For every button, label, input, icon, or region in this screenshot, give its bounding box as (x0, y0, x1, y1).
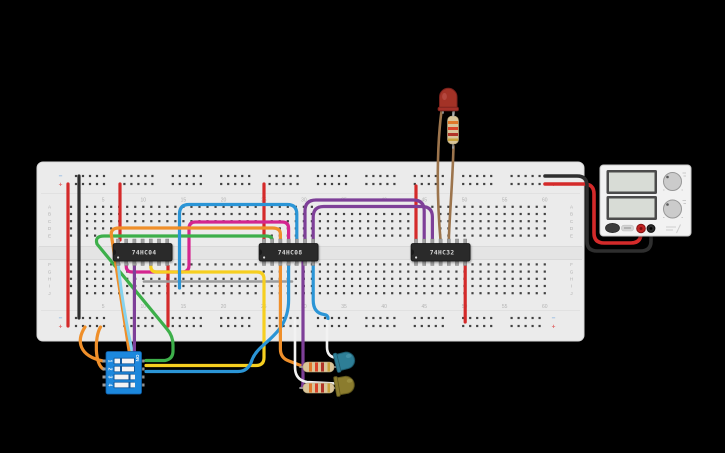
dip-position-label: 1 (106, 360, 112, 363)
circuit-canvas[interactable]: 5510101515202025253030353540404545505055… (0, 0, 725, 453)
ic-pin1-dot (415, 256, 417, 258)
svg-text:F: F (48, 262, 51, 267)
psu-knob[interactable] (664, 173, 682, 191)
svg-text:J: J (570, 291, 572, 296)
svg-text:−: − (59, 173, 63, 180)
resistor-band (321, 384, 324, 393)
svg-text:40: 40 (381, 304, 387, 310)
resistor-led1[interactable] (448, 112, 459, 148)
ic-label: 74HC32 (430, 249, 455, 256)
psu-knob-indicator (666, 203, 669, 206)
svg-text:G: G (570, 269, 574, 274)
svg-text:E: E (570, 233, 573, 238)
svg-text:B: B (570, 212, 573, 217)
dip-switch[interactable]: 1234ON (103, 352, 145, 395)
svg-text:+: + (552, 323, 556, 330)
svg-text:J: J (48, 291, 50, 296)
svg-text:−: − (59, 315, 63, 322)
svg-text:+: + (59, 181, 63, 188)
svg-text:F: F (570, 262, 573, 267)
resistor-band (448, 139, 458, 142)
svg-text:5: 5 (102, 197, 105, 203)
resistor-band (328, 363, 331, 372)
circuit-scene: 5510101515202025253030353540404545505055… (0, 0, 725, 453)
svg-text:10: 10 (140, 197, 146, 203)
svg-text:15: 15 (181, 197, 187, 203)
psu-knob-indicator (666, 176, 669, 179)
svg-text:55: 55 (502, 197, 508, 203)
svg-text:−: − (552, 315, 556, 322)
svg-text:55: 55 (502, 304, 508, 310)
dip-slider-nub[interactable] (131, 383, 136, 388)
resistor-band (328, 384, 331, 393)
svg-text:+: + (59, 323, 63, 330)
svg-text:H: H (48, 277, 51, 282)
svg-text:20: 20 (221, 197, 227, 203)
resistor-band (321, 363, 324, 372)
resistor-band (309, 363, 312, 372)
ic-label: 74HC08 (278, 249, 303, 256)
resistor-led2[interactable] (300, 362, 339, 372)
psu-knob[interactable] (664, 200, 682, 218)
resistor-led3[interactable] (300, 383, 339, 393)
resistor-band (448, 133, 458, 136)
resistor-band (315, 363, 318, 372)
svg-text:B: B (48, 212, 51, 217)
svg-text:35: 35 (341, 304, 347, 310)
dip-slider[interactable] (122, 367, 134, 372)
resistor-band (315, 384, 318, 393)
led-highlight (442, 93, 447, 100)
svg-text:45: 45 (422, 304, 428, 310)
svg-text:50: 50 (462, 197, 468, 203)
dip-position-label: 3 (106, 376, 112, 379)
svg-text:5: 5 (102, 304, 105, 310)
dip-position-label: 2 (106, 368, 112, 371)
ic-label: 74HC04 (132, 249, 157, 256)
svg-text:E: E (48, 233, 51, 238)
resistor-band (448, 121, 458, 124)
ic-pin1-dot (117, 256, 119, 258)
resistor-band (309, 384, 312, 393)
dip-slider-nub[interactable] (131, 375, 136, 380)
psu-power-button[interactable] (606, 223, 620, 232)
dip-slider[interactable] (122, 359, 134, 364)
svg-text:I: I (49, 284, 50, 289)
resistor-band (448, 127, 458, 130)
power-supply[interactable] (600, 165, 691, 236)
dip-slider-nub[interactable] (115, 367, 121, 372)
svg-text:G: G (48, 269, 52, 274)
svg-text:20: 20 (221, 304, 227, 310)
svg-text:60: 60 (542, 197, 548, 203)
svg-text:H: H (570, 277, 573, 282)
svg-text:15: 15 (181, 304, 187, 310)
dip-position-label: 4 (106, 384, 112, 387)
psu-display-screen (609, 199, 655, 218)
dip-slider[interactable] (115, 383, 129, 388)
dip-slider-nub[interactable] (115, 359, 121, 364)
dip-slider[interactable] (115, 375, 129, 380)
psu-display-screen (609, 173, 655, 192)
svg-text:I: I (571, 284, 572, 289)
dip-on-label: ON (135, 355, 140, 363)
svg-text:60: 60 (542, 304, 548, 310)
ic-pin1-dot (263, 256, 265, 258)
